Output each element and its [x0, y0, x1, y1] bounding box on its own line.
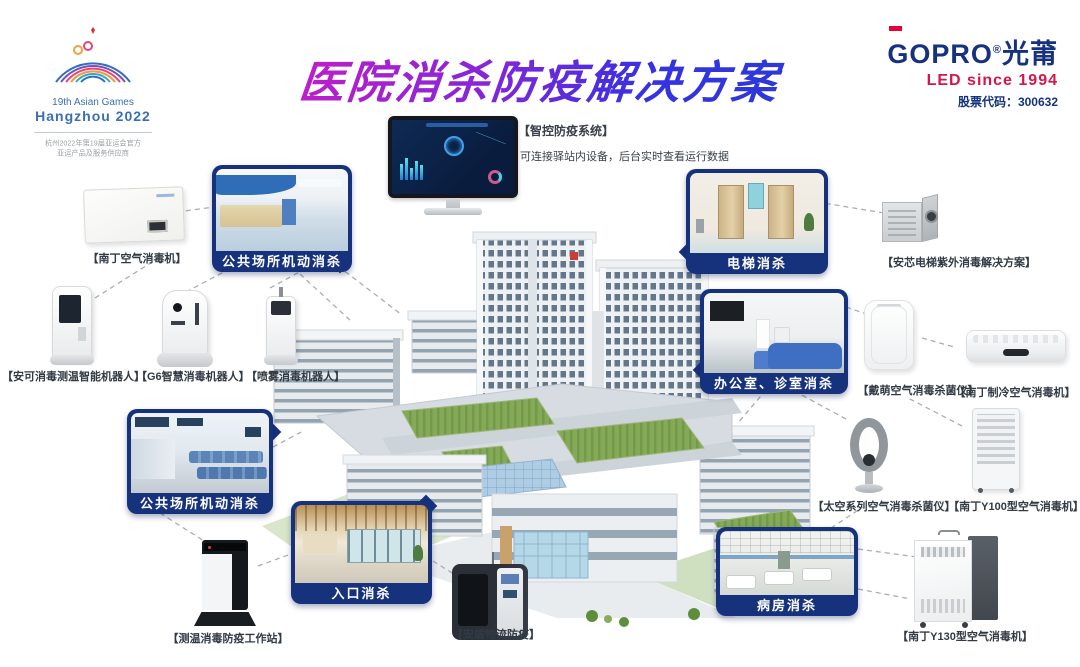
system-name-label: 【智控防疫系统】 — [518, 122, 614, 139]
hospital-bed — [802, 568, 832, 581]
unit-vent — [921, 599, 965, 613]
ward-photo — [720, 531, 854, 595]
product-label: 【安盾物流防疫】 — [448, 626, 544, 642]
asiad-line1: 19th Asian Games — [18, 97, 168, 108]
brand-logo: GOPRO®光莆 — [887, 32, 1058, 71]
nanding-cooler-ac — [966, 330, 1066, 362]
dashboard-donut — [488, 170, 502, 184]
unit-handle — [938, 530, 960, 535]
monitor-stand — [446, 198, 460, 208]
unit-logo — [156, 194, 174, 198]
poster-canvas: 19th Asian Games Hangzhou 2022 杭州2022年第1… — [0, 0, 1080, 667]
callout-public-area-left: 公共场所机动消杀 — [127, 409, 273, 514]
spray-robot — [266, 296, 296, 360]
product-label: 【测温消毒防疫工作站】 — [164, 630, 292, 646]
office-sofa — [768, 343, 842, 369]
product-label: 【太空系列空气消毒杀菌仪】 — [810, 498, 958, 514]
robot-base — [264, 355, 298, 365]
robot-slot — [78, 327, 86, 341]
product-label: 【喷雾消毒机器人】 — [246, 368, 342, 384]
elevator-sign — [748, 183, 764, 209]
unit-wheel — [1009, 488, 1014, 493]
callout-entrance: 入口消杀 — [291, 501, 432, 604]
unit-opening — [458, 574, 488, 626]
robot-base — [157, 353, 213, 367]
callout-label: 办公室、诊室消杀 — [704, 373, 844, 394]
anxin-elevator-unit — [882, 198, 938, 244]
product-label: 【安芯电梯紫外消毒解决方案】 — [845, 254, 1073, 270]
corridor-photo — [216, 169, 348, 251]
signage-screen — [135, 417, 169, 427]
seat-row — [189, 451, 263, 463]
callout-label: 公共场所机动消杀 — [131, 493, 269, 514]
robot-vent — [171, 321, 185, 325]
asiad-note: 杭州2022年第19届亚运会官方 亚运产品及服务供应商 — [26, 139, 161, 158]
unit-wheel — [978, 488, 983, 493]
hospital-bed — [726, 575, 756, 589]
smart-system-monitor — [388, 116, 518, 215]
robot-vent — [195, 303, 199, 325]
office-chair — [774, 327, 790, 343]
product-label: 【G6智慧消毒机器人】 — [136, 368, 248, 384]
fan-base — [855, 484, 883, 493]
robot-camera — [173, 303, 182, 312]
purifier-panel — [871, 306, 907, 364]
gate-opening — [202, 554, 232, 610]
product-label: 【安可消毒测温智能机器人】 — [2, 368, 142, 384]
product-label: 【南丁Y130型空气消毒机】 — [886, 628, 1044, 644]
dashboard-titlebar — [426, 123, 488, 127]
office-cabinet — [756, 319, 770, 349]
space-series-fan — [846, 418, 892, 496]
ac-vents — [973, 335, 1059, 343]
dashboard-linechart — [476, 132, 506, 144]
ward-cabinet — [778, 551, 790, 569]
dashboard-bar — [415, 161, 418, 180]
system-desc-label: 可连接驿站内设备，后台实时查看运行数据 — [520, 148, 729, 164]
elevator-door-right — [768, 185, 794, 239]
asian-games-logo: 19th Asian Games Hangzhou 2022 杭州2022年第1… — [18, 24, 168, 160]
product-label: 【南丁Y100型空气消毒机】 — [948, 498, 1080, 514]
lobby-plant — [413, 545, 423, 561]
spray-nozzle — [279, 287, 283, 297]
dashboard-gauge — [444, 136, 464, 156]
elevator-plant — [804, 213, 814, 231]
brand-stock-code: 股票代码：300632 — [887, 93, 1058, 110]
hospital-bed — [764, 571, 794, 585]
unit-screen — [503, 590, 517, 598]
ward-ceiling-grid — [720, 531, 854, 553]
robot-screen — [59, 295, 81, 323]
dashboard-bar — [400, 164, 403, 180]
nurse-station-counter — [220, 205, 282, 227]
lobby-ceiling-slats — [295, 505, 428, 531]
signage-screen — [177, 418, 203, 426]
callout-office: 办公室、诊室消杀 — [700, 289, 848, 394]
y130-unit — [914, 534, 998, 624]
callout-label: 公共场所机动消杀 — [216, 251, 348, 272]
counter-left — [131, 439, 175, 479]
callout-elevator: 电梯消杀 — [686, 169, 828, 274]
product-label: 【南丁制冷空气消毒机】 — [948, 384, 1080, 400]
corridor-ceiling-band — [216, 175, 296, 195]
brand-tagline: LED since 1994 — [887, 72, 1058, 90]
unit-screen — [147, 220, 167, 233]
asian-games-fan-icon — [38, 24, 148, 90]
asiad-line2: Hangzhou 2022 — [18, 108, 168, 124]
brand-red-chip — [889, 26, 902, 31]
corridor-pillar — [282, 199, 296, 225]
monitor-screen — [388, 116, 518, 198]
nanding-wall-unit — [83, 186, 185, 243]
entrance-lobby-photo — [295, 505, 428, 583]
y100-unit — [972, 408, 1020, 490]
trash-bin — [696, 219, 704, 233]
callout-label: 入口消杀 — [295, 583, 428, 604]
elevator-door-left — [718, 185, 744, 239]
box-grille — [888, 208, 916, 236]
g6-robot — [162, 290, 208, 360]
dashboard-bar — [410, 168, 413, 180]
page-title: 医院消杀防疫解决方案 — [267, 46, 814, 111]
brand-block: GOPRO®光莆 LED since 1994 股票代码：300632 — [887, 32, 1058, 110]
robot-base — [50, 355, 94, 365]
fan-knob — [863, 454, 875, 466]
robot-head — [271, 301, 291, 315]
callout-label: 电梯消杀 — [690, 253, 824, 274]
office-tv — [710, 301, 744, 321]
unit-antenna — [492, 552, 494, 564]
signage-screen — [245, 427, 261, 437]
gate-indicator — [208, 546, 211, 549]
corridor-light — [298, 179, 342, 187]
unit-blue-strip — [501, 574, 519, 584]
dashboard-bar — [405, 158, 408, 180]
fan-stem — [865, 472, 873, 484]
unit-louvers — [977, 414, 1015, 464]
box-fan — [925, 210, 938, 223]
ac-display — [1003, 349, 1029, 356]
anke-robot — [52, 286, 92, 360]
unit-front — [914, 540, 972, 622]
lobby-glass-wall — [347, 529, 421, 563]
unit-back-panel — [968, 536, 998, 620]
waiting-area-photo — [131, 413, 269, 493]
monitor-base — [424, 208, 482, 215]
callout-label: 病房消杀 — [720, 595, 854, 616]
product-label: 【南丁空气消毒机】 — [62, 250, 212, 266]
callout-public-area-top: 公共场所机动消杀 — [212, 165, 352, 272]
dashboard-bar — [420, 165, 423, 180]
unit-vent — [921, 547, 965, 557]
gate-base — [194, 612, 256, 626]
asiad-divider — [34, 132, 152, 133]
office-photo — [704, 293, 844, 373]
daimeng-purifier — [864, 300, 914, 370]
temp-disinfect-gate — [194, 540, 256, 628]
callout-ward: 病房消杀 — [716, 527, 858, 616]
elevator-photo — [690, 173, 824, 253]
lobby-wall-sign — [303, 535, 337, 553]
box-front — [882, 202, 922, 242]
seat-row — [197, 467, 267, 479]
dashboard-screen — [392, 120, 514, 194]
